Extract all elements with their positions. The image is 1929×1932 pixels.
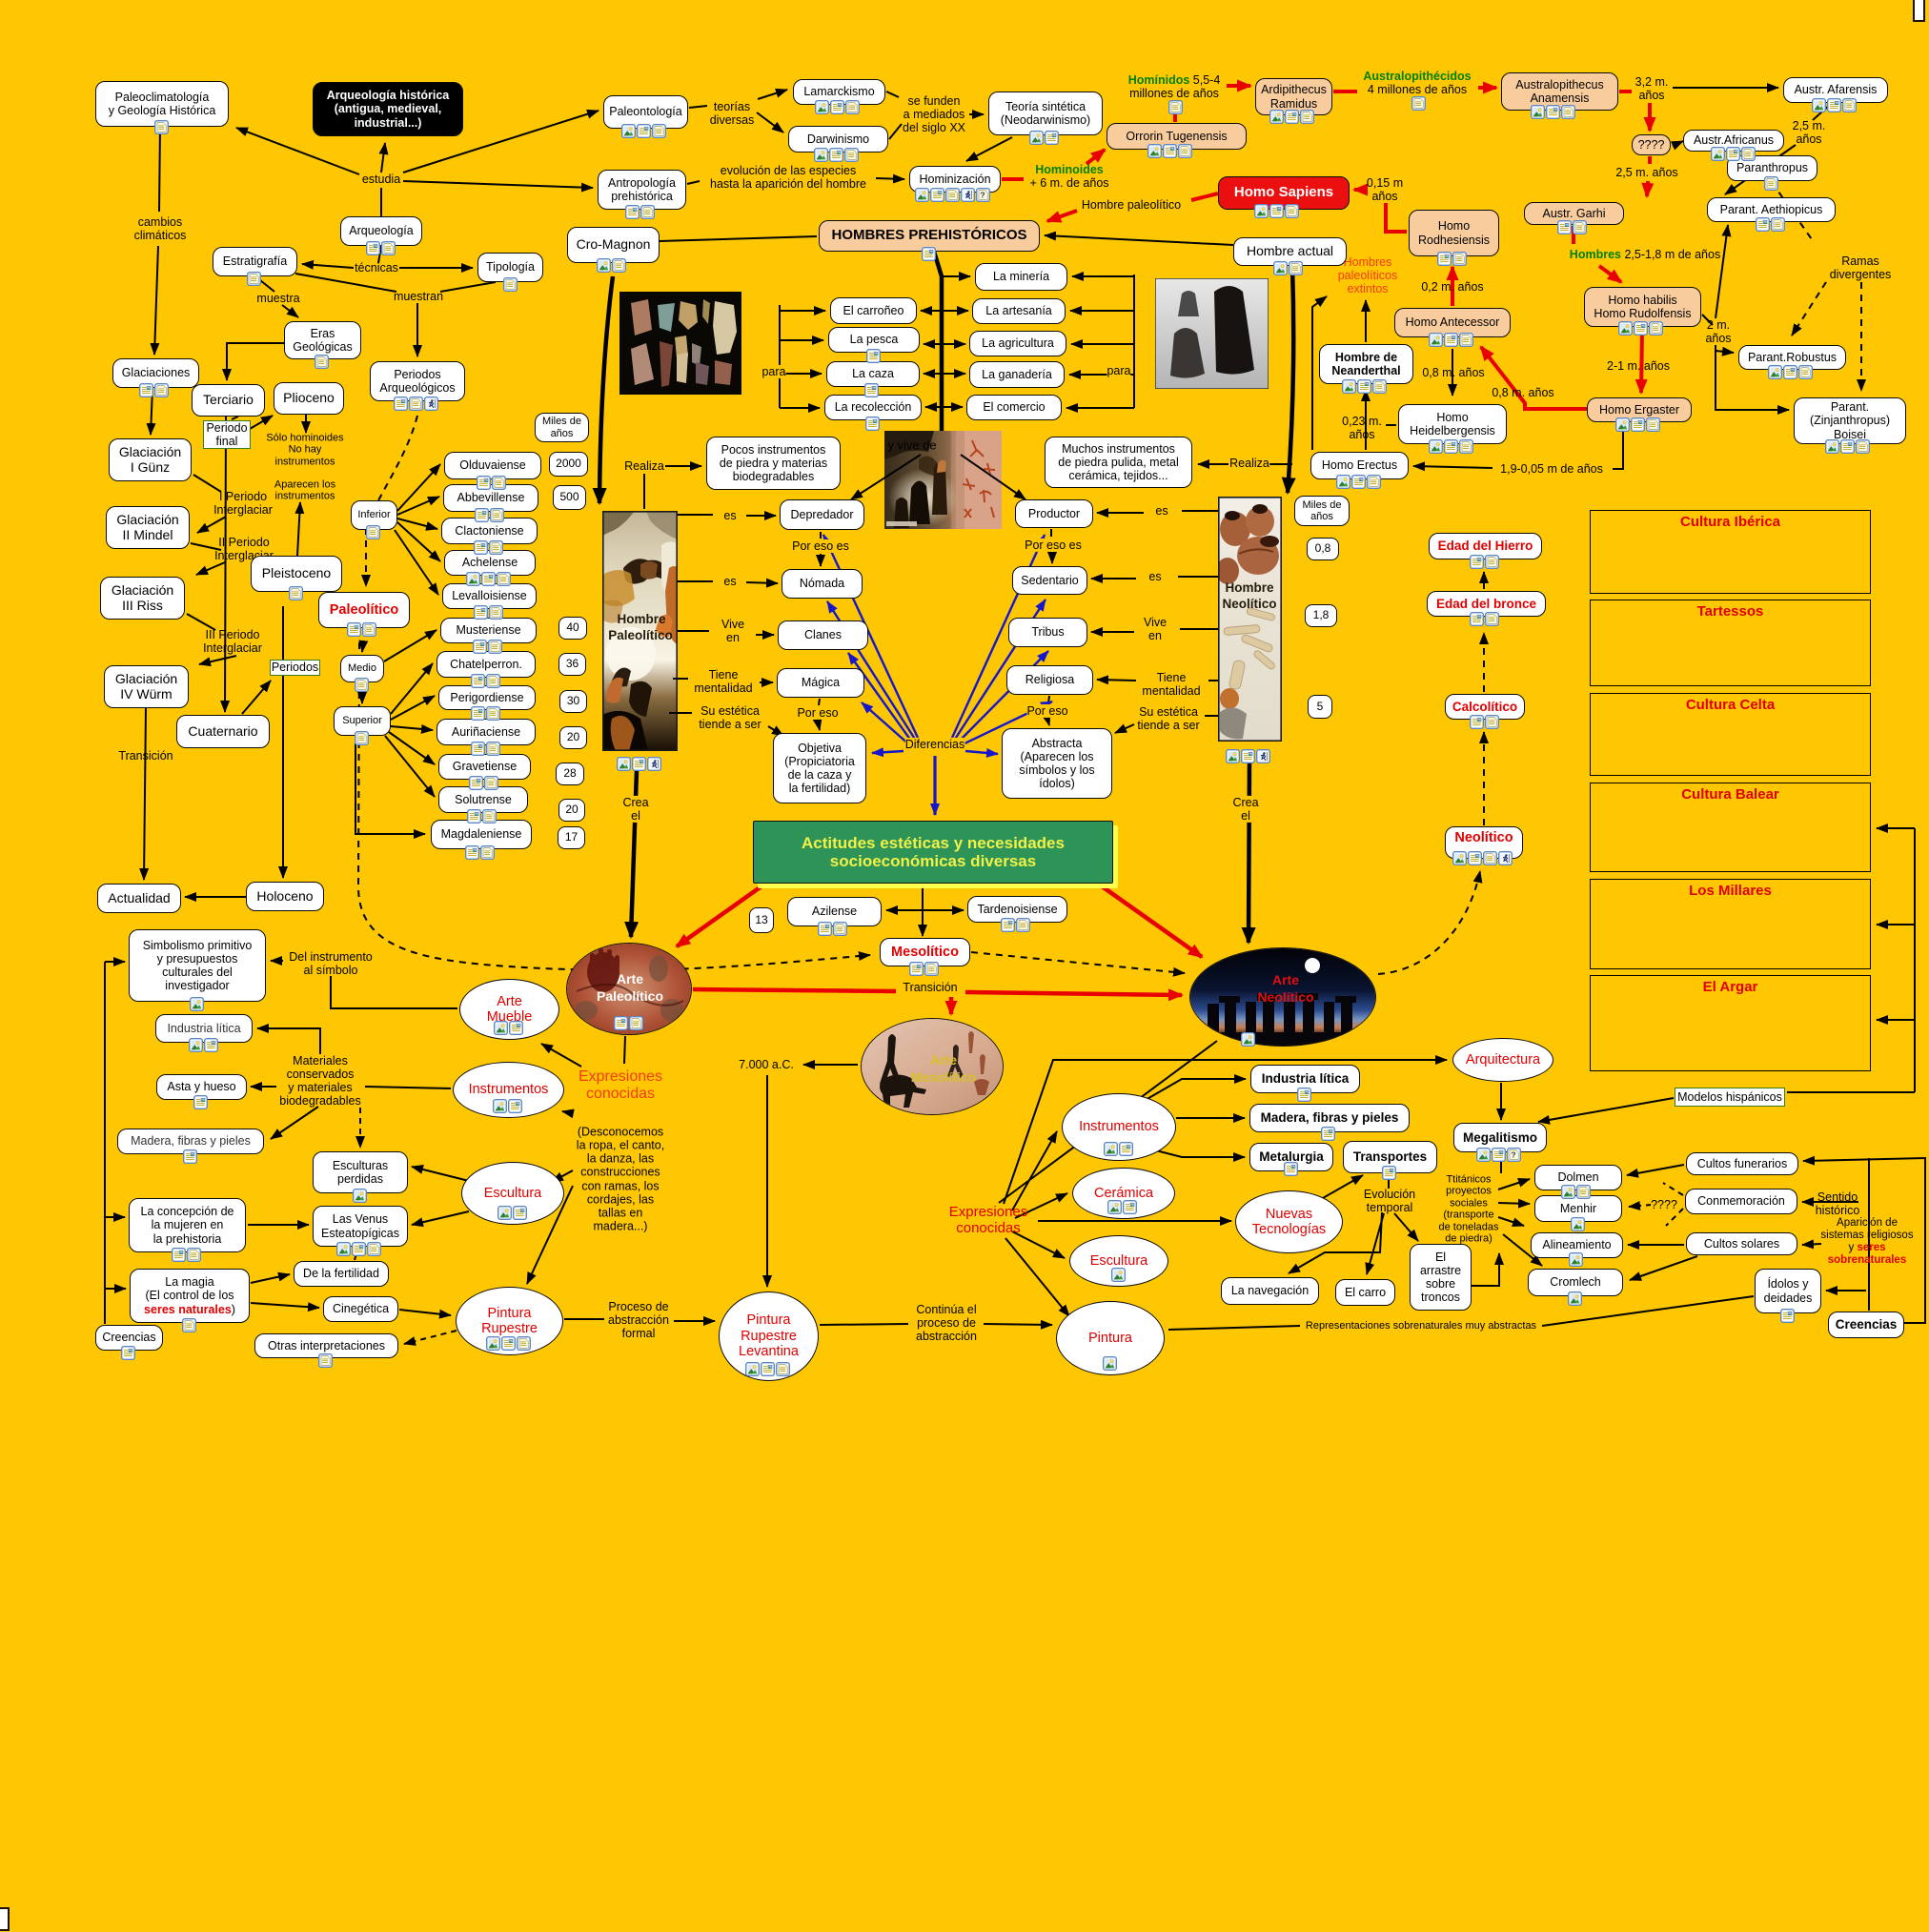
svg-text:Arte: Arte xyxy=(930,1052,957,1068)
svg-text:Paleolítico: Paleolítico xyxy=(597,988,663,1004)
svg-text:Arte: Arte xyxy=(617,971,643,986)
svg-text:Neolítico: Neolítico xyxy=(1257,989,1313,1005)
svg-text:Mesolítico: Mesolítico xyxy=(911,1069,976,1085)
svg-text:?: ? xyxy=(1511,1150,1515,1160)
svg-text:Arte: Arte xyxy=(1272,972,1299,987)
svg-text:?: ? xyxy=(980,191,985,200)
